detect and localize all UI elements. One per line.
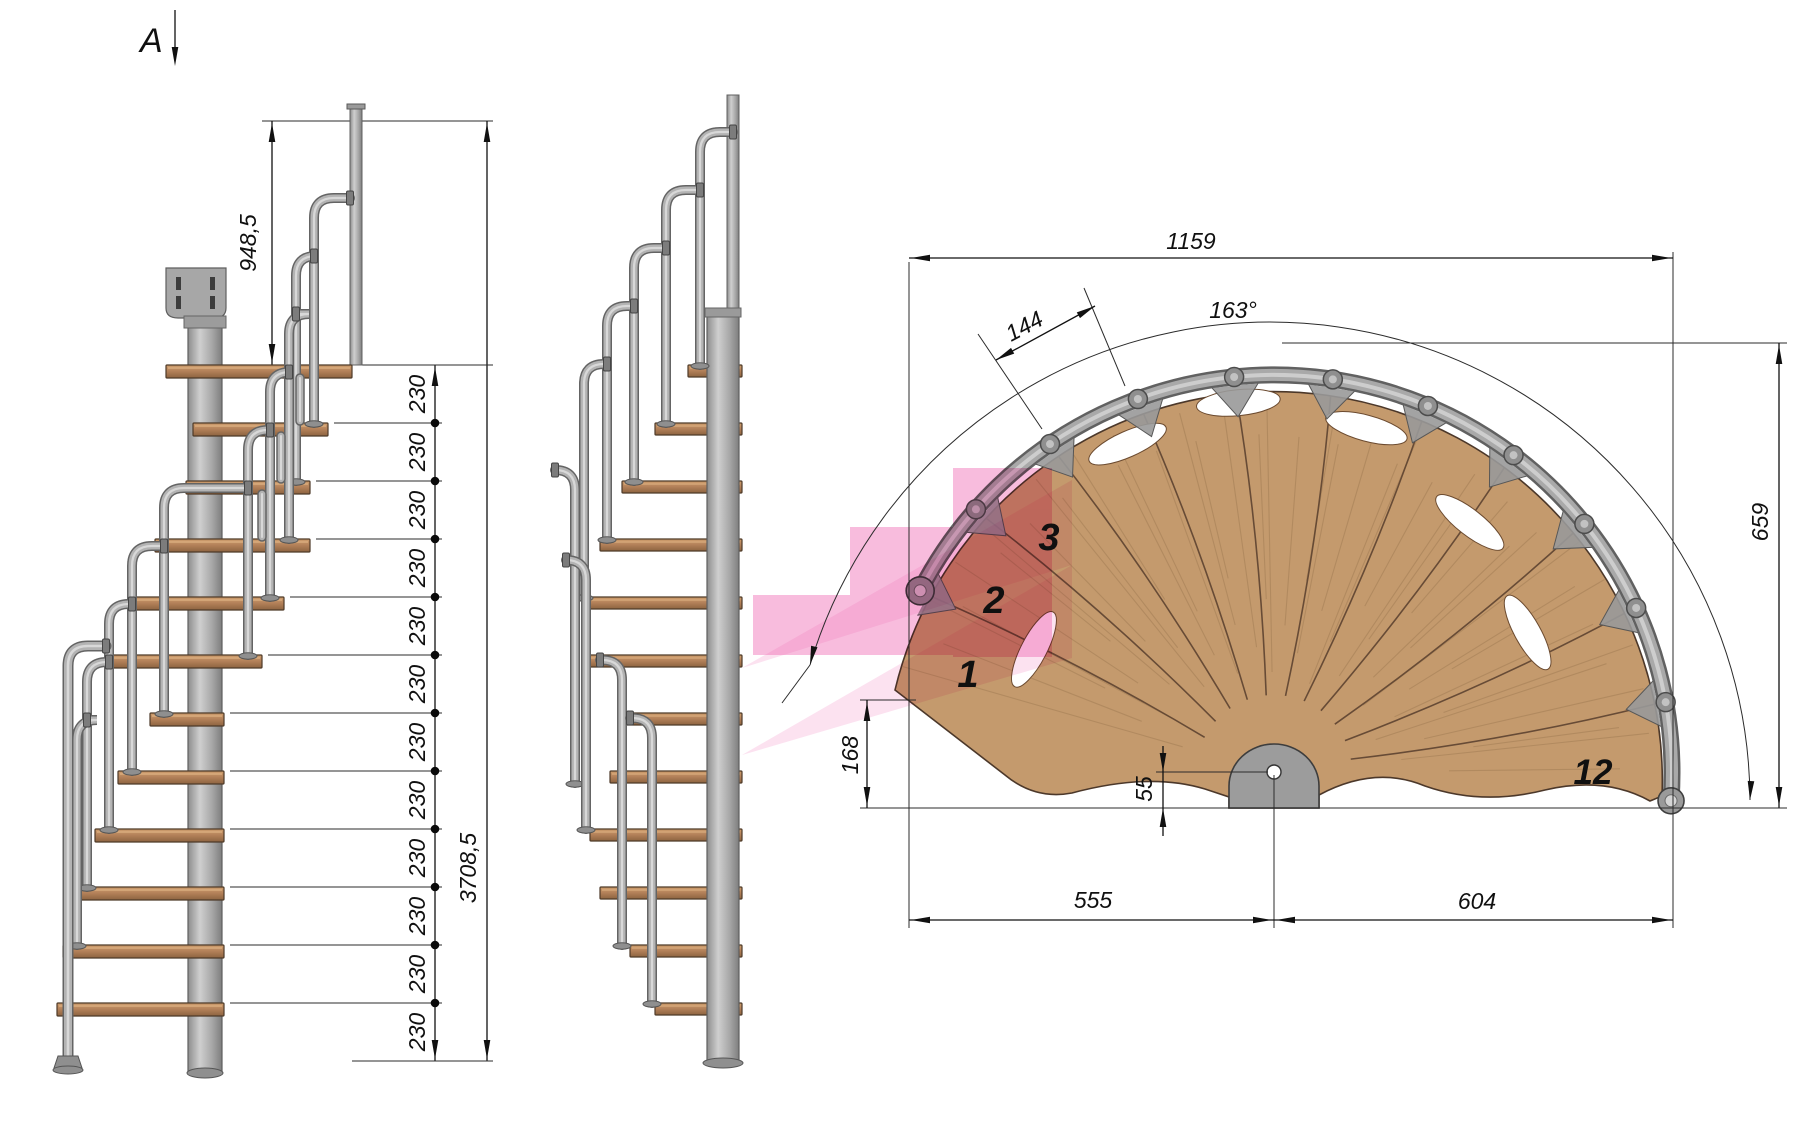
dim-top-height: 948,5: [235, 214, 261, 272]
wall-bracket: [166, 268, 226, 318]
drawing-svg: A 948,5 3708,5 230 230 230 230 230 230 2…: [0, 0, 1800, 1122]
front-center-post: [707, 313, 739, 1063]
dim-entry-depth: 168: [837, 736, 863, 775]
dim-riser-10: 230: [404, 955, 430, 995]
dim-depth-right: 659: [1747, 503, 1773, 542]
dim-riser-6: 230: [404, 723, 430, 763]
step-number-12: 12: [1574, 753, 1613, 792]
dim-riser-3: 230: [404, 549, 430, 589]
section-label-a: A: [138, 22, 163, 60]
dim-riser-11: 230: [404, 1013, 430, 1053]
front-elevation-view: [552, 95, 744, 1068]
dim-riser-7: 230: [404, 781, 430, 821]
dim-riser-0: 230: [404, 375, 430, 415]
step-number-2: 2: [982, 580, 1004, 622]
dim-sweep-angle: 163°: [1209, 297, 1257, 323]
dim-riser-1: 230: [404, 433, 430, 473]
dim-riser-4: 230: [404, 607, 430, 647]
dim-span-left: 555: [1074, 887, 1113, 913]
dim-center-offset: 55: [1131, 776, 1157, 802]
dim-overall-width: 1159: [1166, 228, 1216, 254]
dim-riser-9: 230: [404, 897, 430, 937]
dim-total-height: 3708,5: [455, 833, 481, 904]
dim-tread-width: 144: [1001, 305, 1047, 346]
dim-span-right: 604: [1458, 888, 1496, 914]
staircase-technical-drawing: A 948,5 3708,5 230 230 230 230 230 230 2…: [0, 0, 1800, 1122]
dim-riser-8: 230: [404, 839, 430, 879]
dim-riser-5: 230: [404, 665, 430, 705]
dim-riser-2: 230: [404, 491, 430, 531]
step-number-1: 1: [957, 654, 978, 696]
step-number-3: 3: [1038, 517, 1059, 559]
